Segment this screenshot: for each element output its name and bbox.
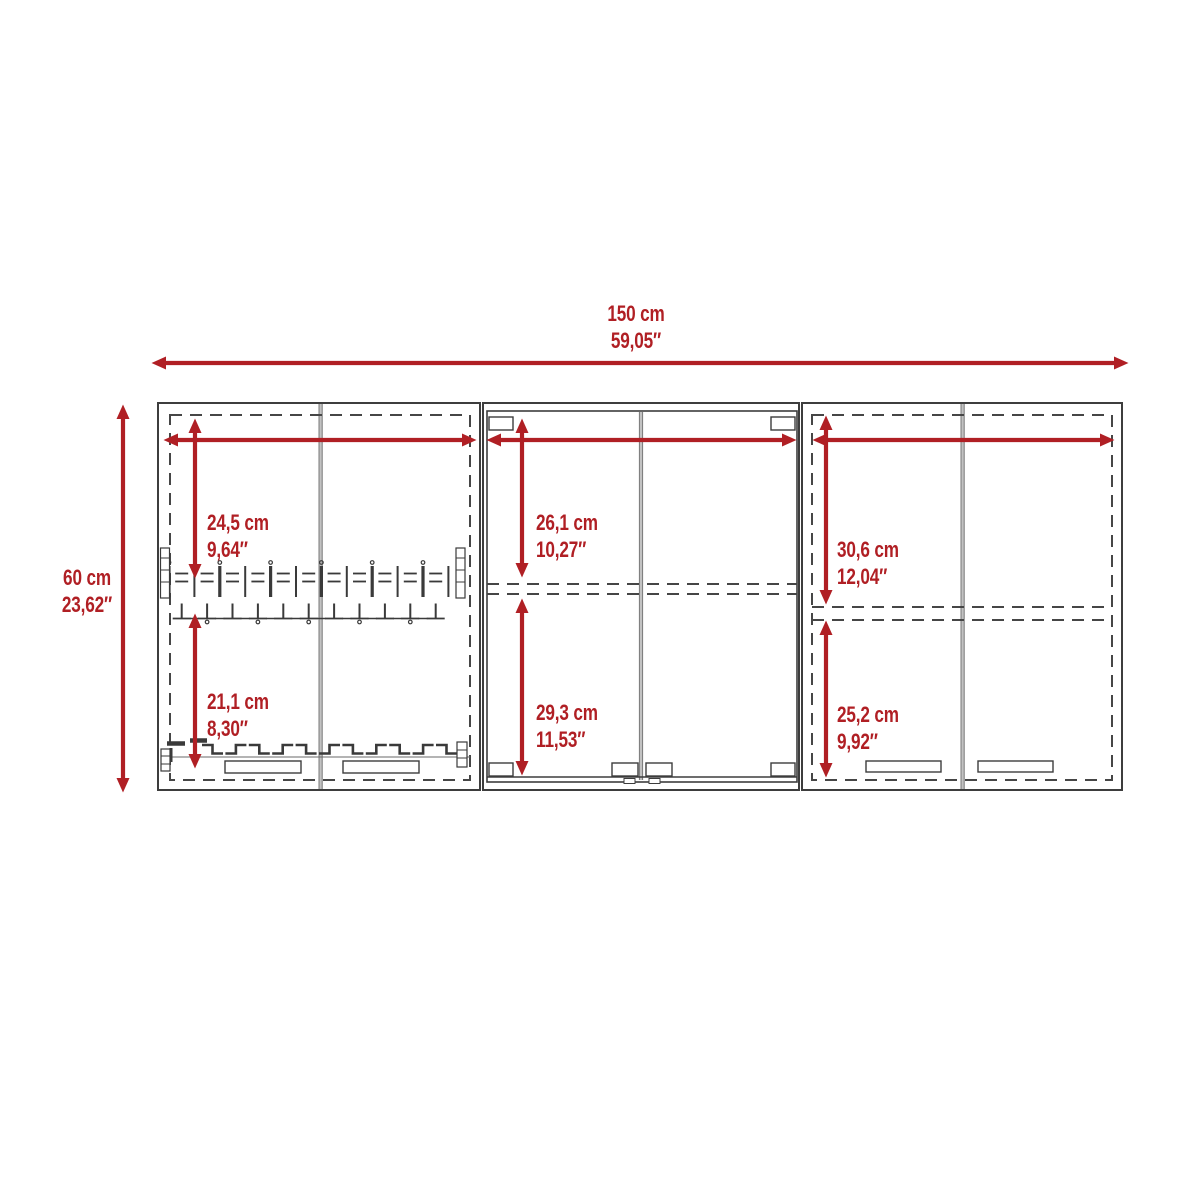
- overall-width-label: 150 cm 59,05″: [542, 300, 729, 354]
- middle-upper-inches: 10,27″: [536, 536, 598, 563]
- lower-rail-rack: [161, 741, 470, 772]
- middle-lower-cm: 29,3 cm: [536, 699, 598, 726]
- door-handle: [225, 761, 301, 773]
- hinge: [771, 417, 795, 430]
- cabinet-drawing: [0, 0, 1200, 1200]
- hinge: [489, 417, 513, 430]
- right-lower-inches: 9,92″: [837, 728, 899, 755]
- right-lower-label: 25,2 cm 9,92″: [837, 701, 899, 755]
- middle-upper-cm: 26,1 cm: [536, 509, 598, 536]
- door-bumper: [649, 779, 660, 784]
- door-handle: [978, 761, 1053, 772]
- door-bumper: [624, 779, 635, 784]
- overall-width-inches: 59,05″: [542, 327, 729, 354]
- left-upper-inches: 9,64″: [207, 536, 269, 563]
- overall-height-label: 60 cm 23,62″: [50, 564, 125, 618]
- overall-height-inches: 23,62″: [50, 591, 125, 618]
- hinge: [646, 763, 672, 776]
- left-upper-cm: 24,5 cm: [207, 509, 269, 536]
- right-upper-inches: 12,04″: [837, 563, 899, 590]
- overall-width-cm: 150 cm: [542, 300, 729, 327]
- door-handle: [343, 761, 419, 773]
- hinge: [612, 763, 638, 776]
- middle-lower-label: 29,3 cm 11,53″: [536, 699, 598, 753]
- overall-height-cm: 60 cm: [50, 564, 125, 591]
- left-lower-inches: 8,30″: [207, 715, 269, 742]
- left-upper-label: 24,5 cm 9,64″: [207, 509, 269, 563]
- dimension-diagram: 150 cm 59,05″ 60 cm 23,62″ 24,5 cm 9,64″…: [0, 0, 1200, 1200]
- right-upper-cm: 30,6 cm: [837, 536, 899, 563]
- middle-lower-inches: 11,53″: [536, 726, 598, 753]
- left-lower-cm: 21,1 cm: [207, 688, 269, 715]
- hinge: [489, 763, 513, 776]
- middle-upper-label: 26,1 cm 10,27″: [536, 509, 598, 563]
- left-lower-label: 21,1 cm 8,30″: [207, 688, 269, 742]
- right-lower-cm: 25,2 cm: [837, 701, 899, 728]
- door-handle: [866, 761, 941, 772]
- hinge: [771, 763, 795, 776]
- right-upper-label: 30,6 cm 12,04″: [837, 536, 899, 590]
